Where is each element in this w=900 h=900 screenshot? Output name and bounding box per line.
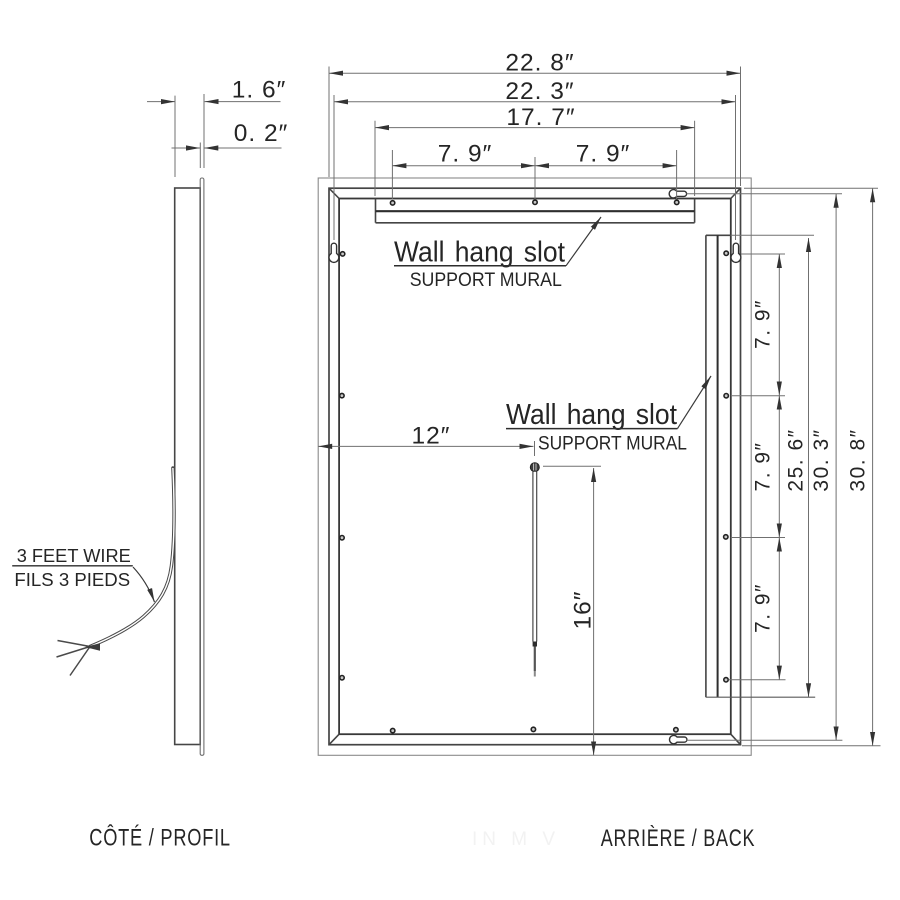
svg-text:25. 6″: 25. 6″ (785, 428, 808, 491)
svg-text:22. 3″: 22. 3″ (505, 78, 574, 105)
svg-text:7. 9″: 7. 9″ (438, 141, 493, 168)
svg-text:Wall hang slot: Wall hang slot (506, 398, 677, 430)
svg-text:7. 9″: 7. 9″ (751, 299, 774, 349)
svg-text:12″: 12″ (412, 423, 451, 450)
svg-text:16″: 16″ (570, 591, 597, 630)
svg-text:FILS 3 PIEDS: FILS 3 PIEDS (14, 569, 130, 590)
svg-text:0. 2″: 0. 2″ (234, 120, 289, 147)
svg-text:ARRIÈRE / BACK: ARRIÈRE / BACK (601, 823, 755, 851)
svg-text:Wall hang slot: Wall hang slot (394, 236, 565, 268)
svg-text:30. 8″: 30. 8″ (846, 428, 869, 491)
svg-text:7. 9″: 7. 9″ (576, 141, 631, 168)
svg-text:22. 8″: 22. 8″ (505, 50, 574, 77)
svg-text:30. 3″: 30. 3″ (810, 428, 833, 491)
svg-text:7. 9″: 7. 9″ (751, 442, 774, 492)
svg-text:1. 6″: 1. 6″ (232, 77, 287, 104)
svg-text:7. 9″: 7. 9″ (751, 583, 774, 633)
svg-text:3 FEET WIRE: 3 FEET WIRE (17, 545, 131, 566)
svg-text:IN M V: IN M V (472, 829, 560, 850)
svg-text:SUPPORT MURAL: SUPPORT MURAL (538, 431, 687, 453)
svg-text:CÔTÉ / PROFIL: CÔTÉ / PROFIL (89, 823, 231, 851)
svg-text:SUPPORT MURAL: SUPPORT MURAL (410, 268, 562, 290)
svg-text:17. 7″: 17. 7″ (506, 104, 575, 131)
